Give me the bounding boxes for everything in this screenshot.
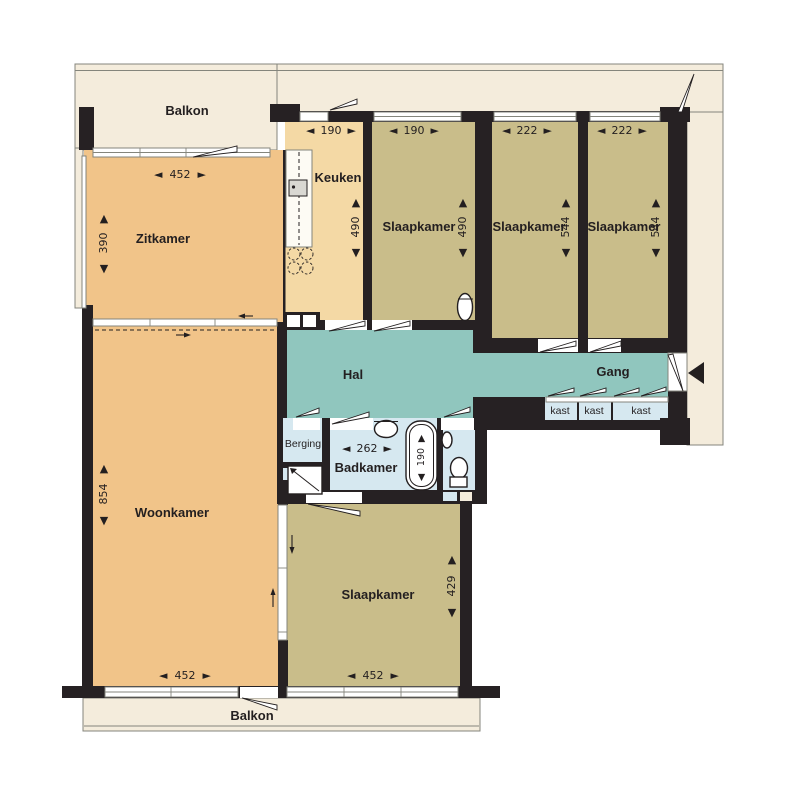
dim-arrow-right: ► [431, 124, 440, 137]
kast-front [546, 397, 668, 402]
floor-plan-page: Balkon Zitkamer Keuken Slaapkamer Slaapk… [0, 0, 785, 800]
dim-arrow-right: ► [384, 442, 393, 455]
dim-arrow-right: ► [348, 124, 357, 137]
dim-woonkamer-depth: 854 [97, 484, 110, 505]
dim-keuken-width: ◄190► [306, 124, 356, 137]
dim-arrow-up: ▲ [562, 196, 571, 209]
dim-value: 222 [612, 124, 633, 137]
label-zitkamer: Zitkamer [136, 231, 190, 246]
wall-segment [668, 112, 687, 353]
dim-arrow-up: ▲ [448, 553, 457, 566]
dim-badkamer-width: ◄262► [342, 442, 392, 455]
label-gang: Gang [596, 364, 629, 379]
dim-value: 190 [404, 124, 425, 137]
label-balkon-bottom: Balkon [230, 708, 273, 723]
dim-value: 190 [321, 124, 342, 137]
dim-arrow-left: ◄ [502, 124, 511, 137]
wall-segment [283, 150, 286, 322]
dim-arrow-down: ▼ [652, 246, 661, 259]
dim-value: 452 [175, 669, 196, 682]
window [300, 112, 328, 121]
dim-slaapkamer-3-depth: 544 [649, 217, 662, 238]
dim-value: 452 [170, 168, 191, 181]
wall-segment [79, 107, 94, 150]
dim-arrow-left: ◄ [342, 442, 351, 455]
dim-slaapkamer-1-width: ◄190► [389, 124, 439, 137]
toilet-icon [451, 458, 468, 479]
gallery-right [687, 112, 723, 445]
wall-segment [460, 504, 472, 686]
kitchen-sink-unit [289, 180, 307, 196]
label-keuken: Keuken [315, 170, 362, 185]
dim-arrow-right: ► [203, 669, 212, 682]
sliding-door-woonkamer-slaapkamer [278, 505, 287, 640]
label-balkon-top: Balkon [165, 103, 208, 118]
dim-woonkamer-width: ◄452► [159, 669, 211, 682]
wall-segment [82, 305, 93, 698]
dim-arrow-down: ▼ [562, 246, 571, 259]
dim-zitkamer-width: ◄452► [154, 168, 206, 181]
wall-segment [278, 480, 288, 505]
room-hal [287, 330, 473, 418]
washbasin-icon [442, 432, 452, 448]
dim-value: 222 [517, 124, 538, 137]
dim-arrow-down: ▼ [448, 606, 457, 619]
toilet-cistern [450, 477, 467, 487]
wall-segment [475, 418, 487, 490]
dim-arrow-down: ▼ [418, 472, 426, 483]
wall-segment [475, 122, 492, 338]
dim-slaapkamer-4-depth: 429 [445, 576, 458, 597]
wall-segment [578, 122, 588, 338]
label-badkamer: Badkamer [335, 460, 398, 475]
label-kast-1: kast [550, 405, 569, 417]
dim-slaapkamer-2-depth: 544 [559, 217, 572, 238]
dim-arrow-right: ► [544, 124, 553, 137]
dim-arrow-down: ▼ [100, 262, 109, 275]
dim-arrow-up: ▲ [652, 196, 661, 209]
dim-value: 452 [363, 669, 384, 682]
dim-arrow-left: ◄ [159, 669, 168, 682]
dim-arrow-right: ► [639, 124, 648, 137]
door-opening [441, 418, 474, 430]
label-hal: Hal [343, 367, 363, 382]
wall-segment [322, 418, 330, 492]
washbasin-icon [458, 294, 473, 321]
dim-bath-length: 190 [416, 448, 427, 466]
shaft-inset [287, 315, 300, 327]
dim-value: 262 [357, 442, 378, 455]
dim-slaapkamer-3-width: ◄222► [597, 124, 647, 137]
sliding-wall-zitkamer-woonkamer [93, 319, 277, 326]
dim-arrow-right: ► [198, 168, 207, 181]
shaft-inset [303, 315, 316, 327]
label-slaapkamer-2: Slaapkamer [493, 219, 566, 234]
window-side [82, 156, 86, 308]
wall-segment [668, 391, 687, 420]
dim-arrow-down: ▼ [352, 246, 361, 259]
wall-segment [278, 640, 288, 686]
kitchen-tap-icon [292, 185, 295, 188]
door-opening [293, 418, 320, 430]
dim-arrow-up: ▲ [418, 433, 426, 444]
label-slaapkamer-1: Slaapkamer [383, 219, 456, 234]
wall-segment [363, 122, 372, 330]
dim-zitkamer-depth: 390 [97, 233, 110, 254]
dim-arrow-right: ► [391, 669, 400, 682]
label-kast-3: kast [631, 405, 650, 417]
dim-arrow-left: ◄ [306, 124, 315, 137]
dim-arrow-left: ◄ [347, 669, 356, 682]
dim-arrow-left: ◄ [389, 124, 398, 137]
label-slaapkamer-4: Slaapkamer [342, 587, 415, 602]
washbasin-icon [375, 421, 398, 438]
dim-slaapkamer-1-depth: 490 [456, 217, 469, 238]
label-woonkamer: Woonkamer [135, 505, 209, 520]
dim-arrow-up: ▲ [100, 212, 109, 225]
dim-arrow-up: ▲ [100, 462, 109, 475]
wall-segment [545, 420, 668, 430]
shaft-inset [460, 492, 472, 501]
dim-arrow-left: ◄ [597, 124, 606, 137]
room-woonkamer [93, 322, 279, 686]
shaft-inset [443, 492, 457, 501]
dim-keuken-depth: 490 [349, 217, 362, 238]
wall-segment [277, 322, 287, 418]
dim-arrow-up: ▲ [459, 196, 468, 209]
dim-arrow-down: ▼ [100, 514, 109, 527]
dim-slaapkamer-4-width: ◄452► [347, 669, 399, 682]
dim-arrow-down: ▼ [459, 246, 468, 259]
wall-segment [473, 338, 687, 353]
floor-plan: Balkon Zitkamer Keuken Slaapkamer Slaapk… [0, 0, 785, 800]
balcony-door-opening [240, 687, 278, 698]
dim-slaapkamer-2-width: ◄222► [502, 124, 552, 137]
dim-arrow-up: ▲ [352, 196, 361, 209]
label-berging: Berging [285, 438, 321, 450]
dim-arrow-left: ◄ [154, 168, 163, 181]
label-kast-2: kast [584, 405, 603, 417]
